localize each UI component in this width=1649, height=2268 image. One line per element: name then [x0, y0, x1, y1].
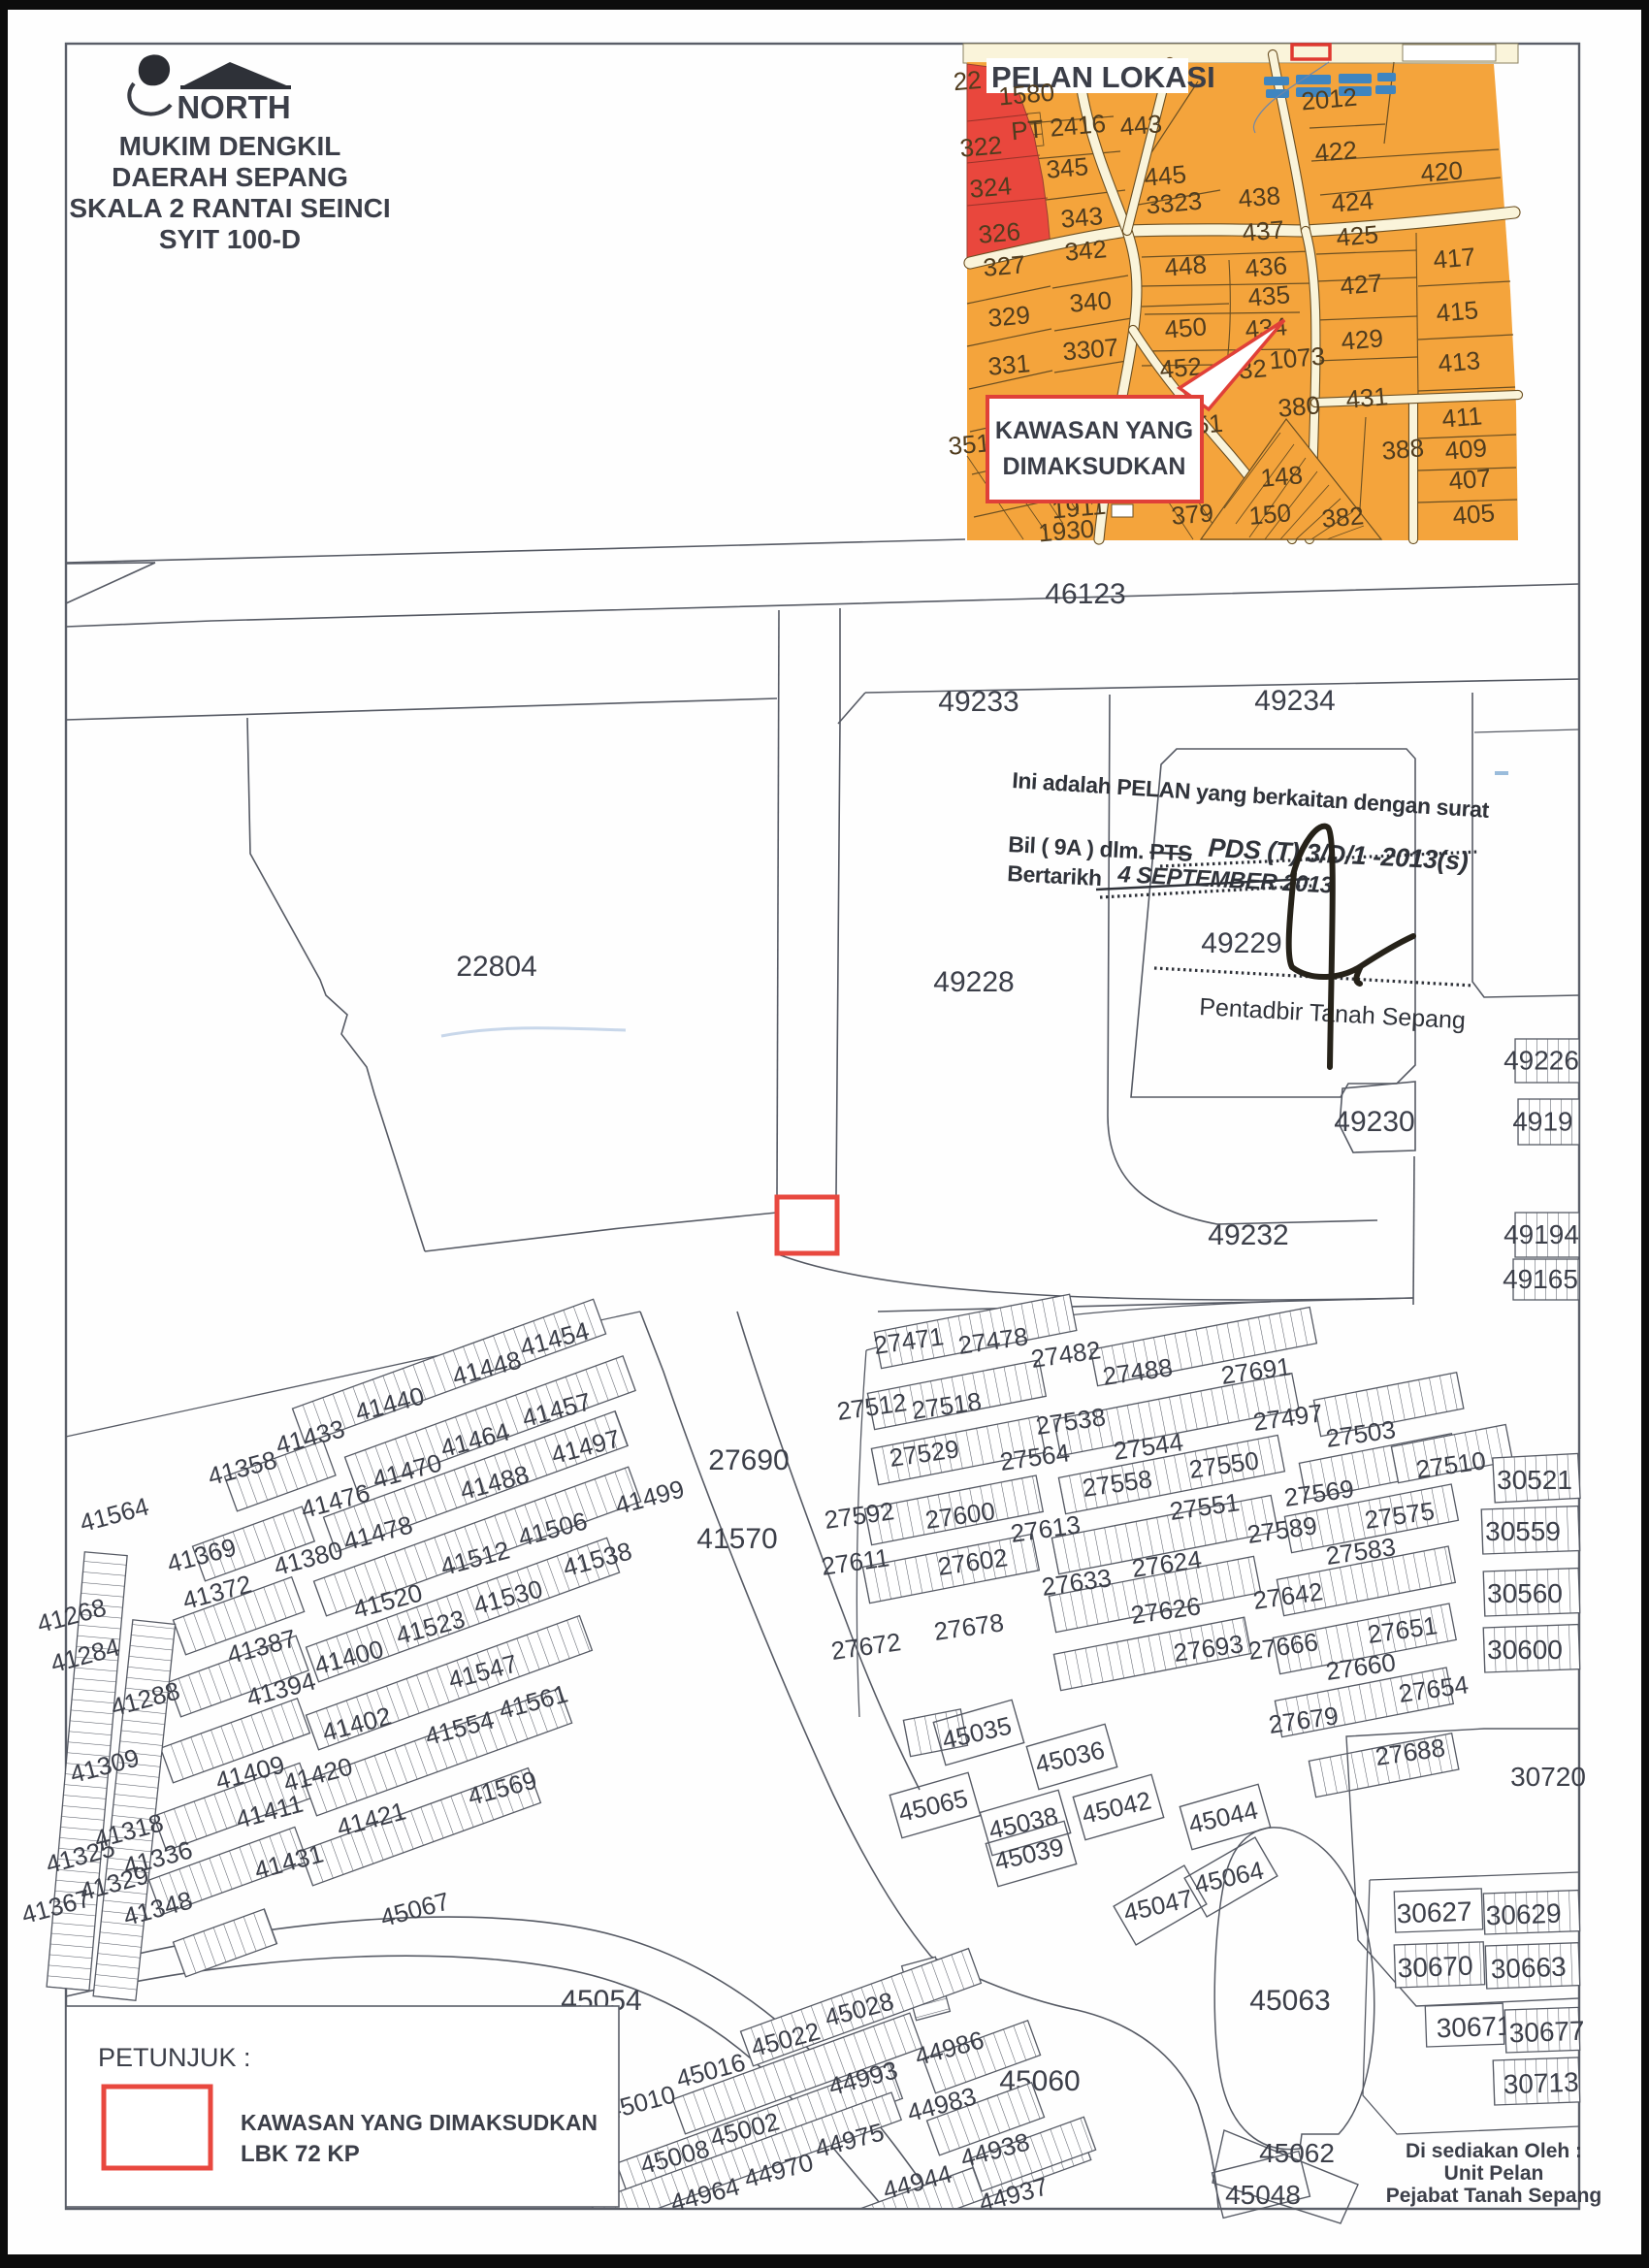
svg-text:30663: 30663 [1490, 1952, 1567, 1985]
svg-text:1930: 1930 [1037, 514, 1095, 548]
svg-text:41570: 41570 [696, 1523, 777, 1555]
svg-text:30521: 30521 [1497, 1465, 1572, 1495]
svg-text:1073: 1073 [1268, 341, 1326, 375]
svg-text:417: 417 [1432, 242, 1476, 275]
svg-text:413: 413 [1437, 345, 1481, 378]
svg-text:420: 420 [1419, 155, 1464, 188]
svg-text:45062: 45062 [1259, 2138, 1335, 2168]
svg-text:407: 407 [1447, 463, 1492, 496]
svg-text:409: 409 [1443, 433, 1488, 466]
svg-text:PETUNJUK :: PETUNJUK : [98, 2043, 251, 2072]
svg-text:30560: 30560 [1487, 1578, 1563, 1608]
svg-text:NORTH: NORTH [177, 89, 290, 125]
svg-text:49194: 49194 [1503, 1219, 1579, 1249]
svg-text:382: 382 [1320, 501, 1365, 534]
svg-text:4919: 4919 [1512, 1107, 1572, 1137]
svg-text:SKALA 2 RANTAI SEINCI: SKALA 2 RANTAI SEINCI [69, 193, 390, 223]
svg-text:49234: 49234 [1254, 685, 1335, 717]
svg-text:3307: 3307 [1061, 333, 1119, 367]
svg-text:443: 443 [1118, 109, 1163, 142]
svg-text:411: 411 [1440, 401, 1483, 433]
svg-text:422: 422 [1313, 135, 1358, 168]
svg-text:343: 343 [1059, 201, 1104, 234]
svg-text:448: 448 [1163, 249, 1208, 282]
svg-text:LBK 72 KP: LBK 72 KP [241, 2141, 360, 2167]
svg-text:49228: 49228 [933, 966, 1014, 998]
svg-text:30559: 30559 [1485, 1516, 1561, 1546]
svg-text:351: 351 [947, 428, 991, 461]
svg-text:148: 148 [1259, 460, 1304, 493]
svg-text:49233: 49233 [938, 686, 1018, 718]
svg-text:431: 431 [1344, 381, 1389, 414]
svg-text:415: 415 [1435, 295, 1479, 328]
svg-text:Bertarikh: Bertarikh [1007, 860, 1103, 891]
svg-text:30671: 30671 [1436, 2011, 1512, 2044]
svg-text:30627: 30627 [1396, 1896, 1472, 1929]
svg-text:322: 322 [958, 130, 1003, 163]
svg-text:388: 388 [1380, 433, 1425, 466]
svg-text:380: 380 [1277, 390, 1321, 423]
svg-text:327: 327 [982, 249, 1026, 282]
svg-text:DIMAKSUDKAN: DIMAKSUDKAN [1003, 453, 1186, 480]
svg-text:KAWASAN YANG DIMAKSUDKAN: KAWASAN YANG DIMAKSUDKAN [241, 2110, 598, 2135]
svg-text:SYIT 100-D: SYIT 100-D [159, 224, 301, 254]
svg-text:Di sediakan Oleh :: Di sediakan Oleh : [1406, 2140, 1582, 2162]
svg-text:342: 342 [1063, 234, 1108, 267]
svg-text:49165: 49165 [1503, 1264, 1578, 1294]
svg-text:45063: 45063 [1249, 1985, 1330, 2017]
svg-text:1580: 1580 [997, 78, 1055, 112]
svg-text:326: 326 [977, 216, 1021, 249]
svg-text:30713: 30713 [1503, 2067, 1579, 2100]
svg-text:150: 150 [1247, 498, 1292, 531]
svg-text:27690: 27690 [708, 1444, 789, 1476]
svg-text:30670: 30670 [1397, 1951, 1473, 1984]
svg-text:324: 324 [968, 171, 1013, 204]
svg-text:345: 345 [1045, 151, 1089, 184]
svg-text:22804: 22804 [456, 951, 536, 983]
svg-text:30720: 30720 [1510, 1762, 1586, 1792]
svg-text:329: 329 [986, 300, 1031, 333]
svg-text:435: 435 [1246, 279, 1291, 312]
svg-text:49226: 49226 [1503, 1046, 1579, 1076]
svg-text:46123: 46123 [1045, 578, 1125, 610]
svg-text:MUKIM DENGKIL: MUKIM DENGKIL [119, 131, 341, 161]
svg-text:Pejabat Tanah Sepang: Pejabat Tanah Sepang [1386, 2185, 1602, 2207]
svg-text:49229: 49229 [1201, 927, 1281, 959]
svg-text:331: 331 [986, 348, 1031, 381]
svg-text:30677: 30677 [1508, 2016, 1585, 2049]
svg-text:30600: 30600 [1487, 1635, 1563, 1665]
svg-text:49230: 49230 [1334, 1106, 1414, 1138]
svg-text:DAERAH SEPANG: DAERAH SEPANG [112, 162, 348, 192]
svg-text:450: 450 [1163, 311, 1208, 344]
svg-text:49232: 49232 [1208, 1219, 1288, 1251]
svg-text:427: 427 [1339, 268, 1383, 301]
svg-text:KAWASAN YANG: KAWASAN YANG [995, 417, 1193, 444]
svg-text:424: 424 [1330, 185, 1374, 218]
svg-text:3323: 3323 [1145, 186, 1203, 220]
svg-text:429: 429 [1340, 323, 1384, 356]
svg-text:22: 22 [953, 65, 983, 96]
svg-text:438: 438 [1237, 180, 1281, 213]
svg-text:30629: 30629 [1485, 1898, 1562, 1931]
svg-text:437: 437 [1241, 214, 1285, 247]
svg-text:2012: 2012 [1300, 82, 1358, 116]
svg-text:436: 436 [1244, 250, 1288, 283]
svg-text:425: 425 [1335, 219, 1379, 252]
svg-text:Unit Pelan: Unit Pelan [1444, 2162, 1544, 2185]
svg-text:340: 340 [1068, 285, 1113, 318]
svg-text:45048: 45048 [1225, 2180, 1301, 2210]
svg-text:405: 405 [1451, 498, 1496, 531]
